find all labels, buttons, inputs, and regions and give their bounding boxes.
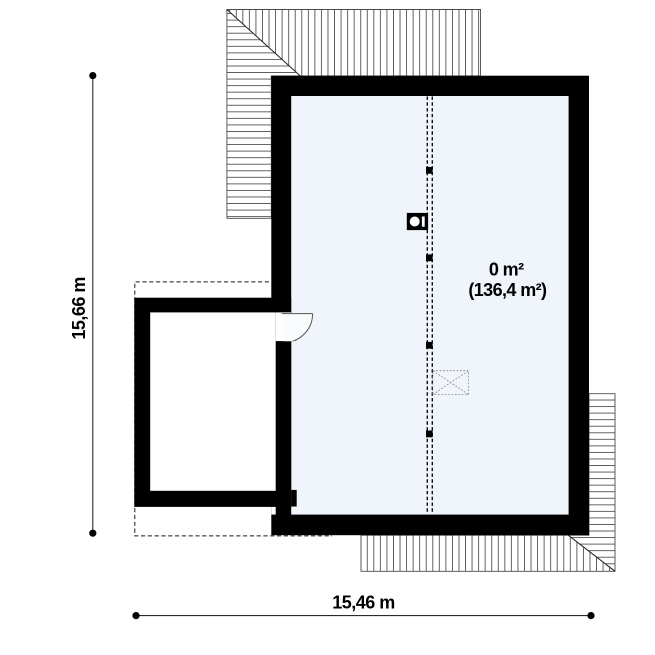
svg-text:(136,4 m²): (136,4 m²) [468,280,547,300]
svg-text:15,66 m: 15,66 m [69,277,89,340]
svg-text:0 m²: 0 m² [489,259,524,279]
svg-text:15,46 m: 15,46 m [332,592,395,612]
